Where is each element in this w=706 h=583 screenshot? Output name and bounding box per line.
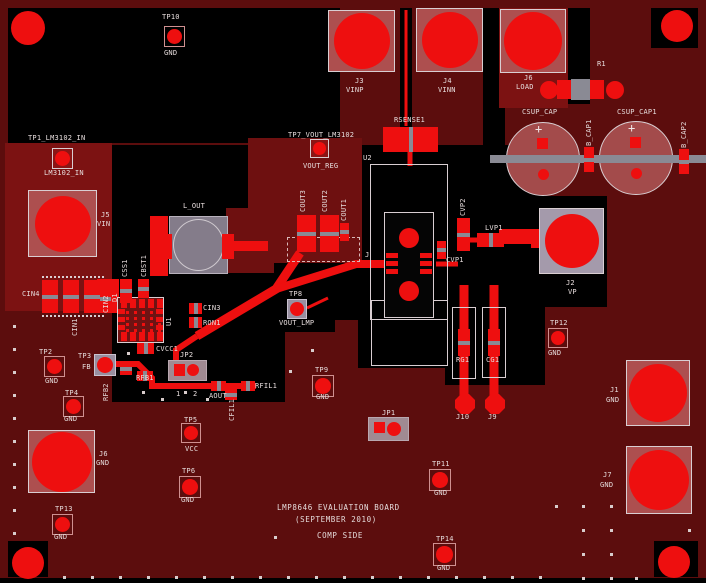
passive-CVCC1 [137,343,154,354]
silkscreen-label: VOUT_REG [303,162,338,170]
passive-pad [477,233,489,247]
u1-pad [139,299,145,308]
via [635,577,638,580]
via [203,576,206,579]
passive-pad [458,345,470,357]
silkscreen-label: GND [64,415,77,423]
silkscreen-label: 2 [193,390,197,398]
via [289,370,292,373]
passive-pad [413,127,439,152]
silkscreen-label: COUT3 [299,190,307,212]
silkscreen-label: GND [54,533,67,541]
silkscreen-label: B_CAP1 [585,120,593,147]
silkscreen-label: J9 [488,413,497,421]
silkscreen-label: R1 [597,60,606,68]
silkscreen-label: B_CAP2 [680,122,688,149]
u1-pad [157,332,163,341]
via [184,391,187,394]
u1-thermal-via [126,323,129,326]
testpoint-hole [182,479,198,495]
silkscreen-label: VCC [185,445,198,453]
via [511,576,514,579]
mount-hole-top-left [11,11,45,45]
passive-pad [138,279,149,287]
silkscreen-label: JP1 [382,409,395,417]
via [161,398,164,401]
silkscreen-label: TP8 [289,290,302,298]
silkscreen-label: J6 [524,74,533,82]
u1-thermal-via [134,329,137,332]
via [13,417,16,420]
silkscreen-label: AOUT [209,392,227,400]
r1-end [589,80,604,99]
silkscreen-label: CG1 [486,356,499,364]
passive-pad [340,234,349,241]
testpoint-hole [55,517,70,532]
via [610,505,613,508]
silkscreen-label: TP5 [184,416,197,424]
silkscreen-label: VINN [438,86,456,94]
r1-pad [606,81,624,99]
silkscreen-label: GND [434,489,447,497]
passive-B_CAP2 [679,149,689,174]
silkscreen-label: VINP [346,86,364,94]
elcap-pad-dot [538,169,549,180]
silkscreen-label: TP2 [39,348,52,356]
silkscreen-label: U1 [165,317,173,326]
silkscreen-label: FB [82,363,91,371]
silkscreen-label: COUT2 [321,190,329,212]
via [274,536,277,539]
silkscreen-label: U2 [363,154,372,162]
via [147,576,150,579]
u1-thermal-via [126,317,129,320]
r1-pad [540,81,558,99]
via [582,505,585,508]
via [399,576,402,579]
via [311,349,314,352]
silkscreen-label: CIN2 [102,295,110,313]
via [315,576,318,579]
u1-thermal-via [126,311,129,314]
u2-pad [420,261,432,266]
silkscreen-label: RFB1 [136,374,154,382]
passive-pad [488,329,500,341]
u1-thermal-via [158,317,161,320]
via [427,576,430,579]
via [343,576,346,579]
silkscreen-label: VOUT_LMP [279,319,314,327]
u1-thermal-via [158,329,161,332]
passive-CG1 [488,329,500,356]
via [13,371,16,374]
passive-pad [584,162,594,173]
passive-COUT3 [297,215,316,252]
via [610,529,613,532]
passive-pad [584,147,594,158]
u2-pad [386,253,398,258]
silkscreen-label: J [365,251,369,259]
r1-end [557,80,572,99]
passive-pad [320,236,339,253]
u1-thermal-via [134,311,137,314]
via [13,394,16,397]
passive-pad [42,280,58,295]
passive-pad [458,329,470,341]
silkscreen-label: TP9 [315,366,328,374]
silkscreen-label: LVP1 [485,224,503,232]
via [13,463,16,466]
u1-thermal-via [134,317,137,320]
u1-thermal-via [126,329,129,332]
pad-J9 [485,394,505,414]
passive-RON1 [189,317,202,328]
u1-pad [118,309,125,314]
passive-pad [437,252,446,259]
silkscreen-label: TP11 [432,460,450,468]
u1-pad [130,332,136,341]
silkscreen-label: RON1 [203,319,221,327]
u2-pad [386,261,398,266]
u2-pad [386,269,398,274]
u1-thermal-via [158,323,161,326]
u1-pad [139,332,145,341]
via [13,486,16,489]
passive-RSENSE1 [383,127,438,152]
pad-J10 [455,394,475,414]
passive-LVP1 [477,233,504,247]
silkscreen-label: J10 [456,413,469,421]
silkscreen-label: VP [568,288,577,296]
passive-pad [320,215,339,232]
silkscreen-label: GND [606,396,619,404]
silkscreen-label: CSUP_CAP1 [617,108,657,116]
silkscreen-label: CSS1 [121,259,129,277]
via [371,576,374,579]
testpoint-hole [97,357,113,373]
elcap-pad-dot [631,168,642,179]
silkscreen-label: CVP1 [446,256,464,264]
silkscreen-label: J2 [566,279,575,287]
via [91,576,94,579]
passive-pad [488,345,500,357]
u1-thermal-via [142,317,145,320]
passive-B_CAP1 [584,147,594,172]
passive-pad [297,236,316,253]
passive-RFIL1 [241,381,255,391]
jack-hole [545,214,599,268]
jack-hole [35,196,91,252]
u1-thermal-via [134,323,137,326]
passive-COUT2 [320,215,339,252]
via [142,391,145,394]
passive-COUT1 [340,223,349,241]
silkscreen-label: CFIL1 [228,399,236,421]
passive-CVP1 [437,241,446,259]
via [231,576,234,579]
silkscreen-label: J5 [101,211,110,219]
passive-pad [120,371,132,376]
u1-thermal-via [142,329,145,332]
via [688,529,691,532]
silkscreen-label: GND [437,564,450,572]
passive-pad [63,280,79,295]
passive-pad [437,241,446,248]
silkscreen-label: LM3102_IN [44,169,84,177]
jumper-pad-square [374,422,385,433]
testpoint-hole [315,378,331,394]
u2-pad-round [399,228,419,248]
u1-thermal-via [150,329,153,332]
passive-AOUT-pads [211,381,226,391]
silkscreen-label: LOAD [516,83,534,91]
jack-hole [422,12,478,68]
passive-CVP2 [457,218,470,251]
passive-RG1 [458,329,470,356]
silkscreen-label: D1 [111,293,119,302]
u1-pad [148,299,154,308]
via [119,576,122,579]
jack-hole [32,432,92,492]
passive-pad [493,233,505,247]
via [175,576,178,579]
via [539,576,542,579]
silkscreen-label: J3 [355,77,364,85]
u2-pad [420,269,432,274]
passive-pad [84,299,100,314]
u2-pad-round [399,281,419,301]
mount-hole-top-right [661,10,693,42]
silkscreen-label: TP1_LM3102_IN [28,134,85,142]
passive-pad [457,218,470,233]
silkscreen-label: CIN3 [203,304,221,312]
via [287,576,290,579]
plus-icon: + [535,125,542,133]
u1-thermal-via [150,317,153,320]
pcb-layout-canvas: LMP8646 EVALUATION BOARD (SEPTEMBER 2010… [0,0,706,583]
silkscreen-label: VIN [97,220,110,228]
passive-CBST1 [138,279,149,298]
via [483,576,486,579]
silkscreen-label: GND [316,393,329,401]
silkscreen-label: CVCC1 [156,345,178,353]
inductor-pad [222,234,234,259]
trace [307,298,328,308]
jumper-pad-round [187,364,199,376]
silkscreen-label: TP3 [78,352,91,360]
dotted-row [42,315,104,317]
passive-CSS1 [120,279,132,303]
elcap-pad-square [537,138,548,149]
silkscreen-label: TP14 [436,535,454,543]
jumper-pad-square [174,364,185,376]
passive-pad [457,237,470,252]
passive-RFB2 [120,362,132,375]
silkscreen-label: TP10 [162,13,180,21]
silkscreen-label: TP4 [65,389,78,397]
via [455,576,458,579]
u1-pad [118,325,125,330]
silkscreen-label: RFIL1 [255,382,277,390]
jack-hole [334,13,390,69]
via [63,576,66,579]
silkscreen-label: GND [548,349,561,357]
passive-pad [198,303,203,314]
silkscreen-label: GND [45,377,58,385]
silkscreen-label: L_OUT [183,202,205,210]
via [127,352,130,355]
silkscreen-label: J6 [99,450,108,458]
passive-CIN-a [42,280,58,313]
silkscreen-label: J4 [443,77,452,85]
silkscreen-label: GND [96,459,109,467]
passive-pad [383,127,409,152]
silkscreen-label: TP12 [550,319,568,327]
via [610,577,613,580]
testpoint-hole [55,151,70,166]
via [13,440,16,443]
silkscreen-label: GND [181,496,194,504]
silkscreen-label: CSUP_CAP [522,108,557,116]
silkscreen-label: CBST1 [140,255,148,277]
silkscreen-label: GND [600,481,613,489]
inductor-winding [173,219,224,271]
passive-pad [120,279,132,289]
via [582,553,585,556]
silkscreen-label: GND [164,49,177,57]
silkscreen-label: TP13 [55,505,73,513]
jack-hole [504,12,562,70]
passive-pad [63,299,79,314]
testpoint-hole [436,546,453,563]
testpoint-hole [167,29,182,44]
dotted-row [42,276,104,278]
silkscreen-label: J1 [610,386,619,394]
passive-pad [340,223,349,230]
via [13,348,16,351]
r1-body [571,79,590,100]
testpoint-hole [66,399,81,414]
passive-pad [84,280,100,295]
u2-pad [420,253,432,258]
mount-hole-bottom-right [658,546,690,578]
jumper-pad-round [387,422,401,436]
trace-gray [490,155,706,163]
via [13,325,16,328]
u1-pad [121,332,127,341]
via [555,505,558,508]
u1-thermal-via [150,323,153,326]
testpoint-hole [432,472,448,488]
via [582,529,585,532]
passive-pad [679,164,689,175]
u1-pad [157,299,163,308]
passive-pad [679,149,689,160]
jack-hole [629,364,687,422]
u1-thermal-via [150,311,153,314]
passive-CIN-b [63,280,79,313]
silkscreen-label: RFB2 [102,383,110,401]
silkscreen-label: 1 [176,390,180,398]
u1-pad [148,332,154,341]
silkscreen-label: CIN4 [22,290,40,298]
passive-pad [138,291,149,299]
via [13,509,16,512]
u1-pad [118,317,125,322]
silkscreen-label: JP2 [180,351,193,359]
jack-hole [629,450,689,510]
silkscreen-label: TP6 [182,467,195,475]
passive-pad [198,317,203,328]
silkscreen-label: CVP2 [459,198,467,216]
passive-pad [120,293,132,303]
passive-CIN3 [189,303,202,314]
u1-thermal-via [142,311,145,314]
silkscreen-label: CIN1 [71,318,79,336]
testpoint-hole [47,359,62,374]
elcap-pad-square [630,137,641,148]
passive-CIN-c [84,280,100,313]
u1-thermal-via [142,323,145,326]
silkscreen-label: TP7_VOUT_LM3102 [288,131,354,139]
via [582,577,585,580]
passive-pad [297,215,316,232]
via [610,553,613,556]
u1-thermal-via [158,311,161,314]
plus-icon: + [628,124,635,132]
inductor-pad [160,234,172,259]
silkscreen-label: J7 [603,471,612,479]
mount-hole-bottom-left [12,547,44,579]
silkscreen-label: RG1 [456,356,469,364]
via [259,576,262,579]
passive-pad [42,299,58,314]
silkscreen-label: RSENSE1 [394,116,425,124]
via [13,532,16,535]
passive-pad [148,343,155,354]
silkscreen-label: COUT1 [340,199,348,221]
